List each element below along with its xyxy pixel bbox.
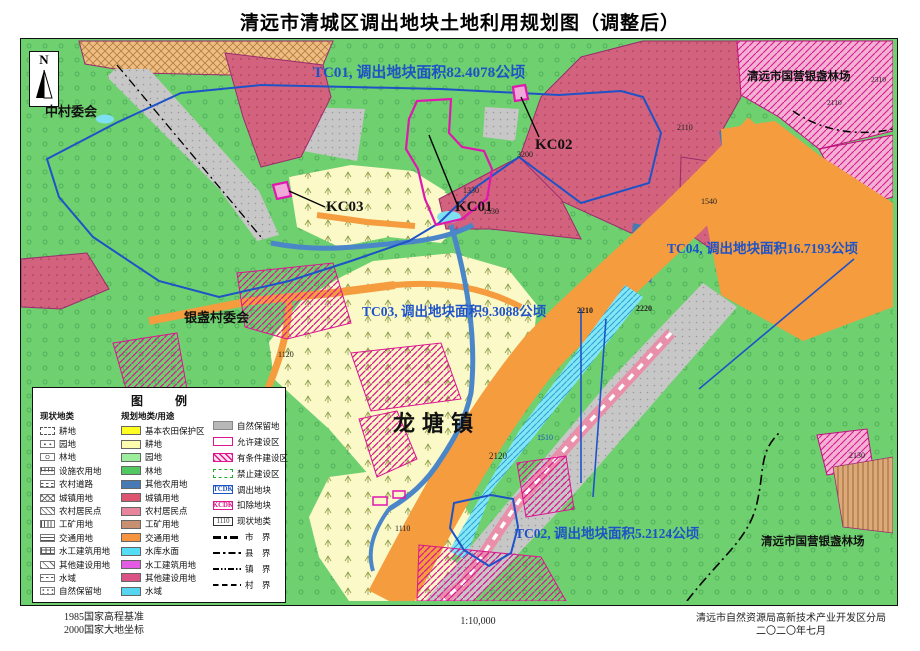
legend-item-label: 农村居民点 [145,505,188,517]
label-kc03: KC03 [326,200,364,215]
legend-item-label: 扣除地块 [237,499,271,511]
agency-name: 清远市自然资源局高新技术产业开发区分局 [696,612,886,625]
label-kc02: KC02 [535,138,573,153]
map-scale: 1:10,000 [408,616,548,627]
tcdk-swatch: TCDK [213,485,233,494]
legend-item: 村 界 [213,577,283,593]
legend-item-label: 市 界 [245,531,271,543]
legend-current-column: 现状地类 耕地园地林地设施农用地农村道路城镇用地农村居民点工矿用地交通用地水工建… [40,410,120,598]
legend-item: 林地 [40,451,120,464]
code-1540: 1540 [701,198,717,206]
legend-item-label: 交通用地 [59,532,93,544]
code-2110-b: 2110 [677,124,693,132]
code-2110-a: 2110 [827,99,842,107]
place-zhongcun: 中村委会 [45,105,97,118]
jiaotong-pattern-swatch [40,534,55,542]
agency-note: 清远市自然资源局高新技术产业开发区分局 二〇二〇年七月 [696,612,886,638]
legend-item-label: 耕地 [145,438,162,450]
legend-item: 市 界 [213,529,283,545]
place-linchang-top: 清远市国营银盏林场 [747,72,851,84]
legend-item-label: 水库水面 [145,545,179,557]
color-swatch [121,493,141,502]
legend-item: 耕地 [121,437,216,450]
map-footer: 1985国家高程基准 2000国家大地坐标 1:10,000 清远市自然资源局高… [20,610,896,648]
code-3200: 3200 [517,151,533,159]
color-swatch [121,547,141,556]
code-2120: 2120 [489,452,507,461]
chengzhen-pattern-swatch [40,494,55,502]
legend-col1-header: 现状地类 [40,410,120,422]
legend-item: 工矿用地 [40,518,120,531]
legend-title: 图 例 [33,392,285,409]
gengdi-pattern-swatch [40,427,55,435]
forbid-swatch [213,469,233,478]
legend-item-label: 交通用地 [145,532,179,544]
page-title: 清远市清城区调出地块土地利用规划图（调整后） [0,8,920,35]
legend-item: 允许建设区 [213,434,283,450]
legend-item: 有条件建设区 [213,450,283,466]
shuiyu-pattern-swatch [40,574,55,582]
color-swatch [121,466,141,475]
legend-zone-column: 自然保留地允许建设区有条件建设区禁止建设区TCDK调出地块KCDK扣除地块111… [213,418,283,593]
legend-item-label: 农村道路 [59,478,93,490]
legend-item: 其他建设用地 [121,571,216,584]
map-frame: N 中村委会 清远市国营银盏林场 银盏村委会 龙塘镇 清远市国营银盏林场 TC0… [20,38,898,606]
legend-item: 农村居民点 [121,504,216,517]
legend-item: 水工建筑用地 [40,545,120,558]
legend-item-label: 园地 [59,438,76,450]
legend-item: 交通用地 [40,531,120,544]
legend-item: 城镇用地 [121,491,216,504]
legend-item: 禁止建设区 [213,466,283,482]
legend-item-label: 林地 [59,451,76,463]
color-swatch [121,520,141,529]
cond-swatch [213,453,233,462]
sheshi-pattern-swatch [40,467,55,475]
legend-item: 耕地 [40,424,120,437]
legend-item: 园地 [40,437,120,450]
legend-item-label: 自然保留地 [59,585,102,597]
legend-item: 农村道路 [40,478,120,491]
allow-swatch [213,437,233,446]
legend-item-label: 城镇用地 [145,492,179,504]
lindi-pattern-swatch [40,453,55,461]
north-compass: N [29,51,59,107]
legend-item-label: 城镇用地 [59,492,93,504]
datum-line1: 1985国家高程基准 [64,612,144,625]
legend-item-label: 基本农田保护区 [145,425,205,437]
legend-item-label: 允许建设区 [237,436,280,448]
color-swatch [121,507,141,516]
legend-item-label: 工矿用地 [145,518,179,530]
annotation-tc04: TC04, 调出地块面积16.7193公顷 [667,242,858,256]
code-swatch: 1110 [213,517,233,526]
line-xian-swatch [213,552,241,554]
color-swatch [121,573,141,582]
code-2130: 2130 [849,452,865,460]
legend-item-label: 县 界 [245,547,271,559]
legend-item: KCDK扣除地块 [213,497,283,513]
code-2210: 2210 [577,307,593,315]
legend-item-label: 镇 界 [245,563,271,575]
legend-item: 工矿用地 [121,518,216,531]
code-2220: 2220 [636,305,652,313]
legend-item-label: 自然保留地 [237,420,280,432]
jumindian-pattern-swatch [40,507,55,515]
legend: 图 例 现状地类 耕地园地林地设施农用地农村道路城镇用地农村居民点工矿用地交通用… [32,387,286,603]
legend-item-label: 园地 [145,451,162,463]
region-mining-vlines [833,457,893,533]
place-longtang: 龙塘镇 [393,413,480,435]
legend-item: 基本农田保护区 [121,424,216,437]
code-2310: 2310 [871,76,886,84]
legend-item-label: 村 界 [245,579,271,591]
line-zhen-swatch [213,568,241,570]
code-1120: 1120 [278,351,294,359]
legend-item-label: 水域 [59,572,76,584]
legend-item: 水域 [40,571,120,584]
legend-item: 其他建设用地 [40,558,120,571]
legend-item: 林地 [121,464,216,477]
legend-item: 交通用地 [121,531,216,544]
legend-item: 镇 界 [213,561,283,577]
legend-item: TCDK调出地块 [213,482,283,498]
datum-line2: 2000国家大地坐标 [64,625,144,638]
shuigong-pattern-swatch [40,547,55,555]
gray-swatch [213,421,233,430]
legend-item-label: 其他建设用地 [59,559,110,571]
color-swatch [121,426,141,435]
code-1530: 1530 [483,208,499,216]
legend-item: 其他农用地 [121,478,216,491]
place-linchang-bottom: 清远市国营银盏林场 [761,537,865,549]
legend-item-label: 设施农用地 [59,465,102,477]
legend-item-label: 其他建设用地 [145,572,196,584]
legend-col1-list: 耕地园地林地设施农用地农村道路城镇用地农村居民点工矿用地交通用地水工建筑用地其他… [40,424,120,598]
gongkuang-pattern-swatch [40,520,55,528]
legend-planned-column: 规划地类/用途 基本农田保护区耕地园地林地其他农用地城镇用地农村居民点工矿用地交… [121,410,216,598]
legend-item: 设施农用地 [40,464,120,477]
legend-item-label: 现状地类 [237,515,271,527]
north-arrow-icon [32,68,56,102]
datum-note: 1985国家高程基准 2000国家大地坐标 [64,612,144,637]
legend-item: 县 界 [213,545,283,561]
legend-item-label: 有条件建设区 [237,452,288,464]
legend-col3-list: 自然保留地允许建设区有条件建设区禁止建设区TCDK调出地块KCDK扣除地块111… [213,418,283,593]
legend-col2-header: 规划地类/用途 [121,410,216,422]
legend-item-label: 调出地块 [237,484,271,496]
yuandi-pattern-swatch [40,440,55,448]
qitajianshe-pattern-swatch [40,561,55,569]
map-date: 二〇二〇年七月 [696,625,886,638]
kcdk-swatch: KCDK [213,501,233,510]
page: 清远市清城区调出地块土地利用规划图（调整后） [0,0,920,651]
legend-item: 自然保留地 [40,585,120,598]
annotation-tc01: TC01, 调出地块面积82.4078公顷 [313,66,525,81]
legend-item-label: 工矿用地 [59,518,93,530]
legend-item: 园地 [121,451,216,464]
legend-item-label: 水域 [145,585,162,597]
annotation-tc03: TC03, 调出地块面积9.3088公顷 [362,305,546,319]
annotation-tc02: TC02, 调出地块面积5.2124公顷 [515,527,699,541]
color-swatch [121,453,141,462]
color-swatch [121,560,141,569]
color-swatch [121,533,141,542]
north-label: N [30,52,58,68]
line-shi-swatch [213,536,241,539]
code-1330: 1330 [463,187,479,195]
legend-item-label: 林地 [145,465,162,477]
legend-item: 1110现状地类 [213,513,283,529]
color-swatch [121,480,141,489]
place-yinzhan: 银盏村委会 [184,311,249,324]
legend-item-label: 耕地 [59,425,76,437]
legend-item-label: 禁止建设区 [237,468,280,480]
legend-item: 水库水面 [121,545,216,558]
code-1510: 1510 [537,434,553,442]
color-swatch [121,440,141,449]
legend-col2-list: 基本农田保护区耕地园地林地其他农用地城镇用地农村居民点工矿用地交通用地水库水面水… [121,424,216,598]
legend-item: 农村居民点 [40,504,120,517]
legend-item: 自然保留地 [213,418,283,434]
legend-item: 水域 [121,585,216,598]
legend-item: 水工建筑用地 [121,558,216,571]
code-1110: 1110 [395,525,410,533]
legend-item: 城镇用地 [40,491,120,504]
ziranbaoliu-pattern-swatch [40,587,55,595]
legend-item-label: 其他农用地 [145,478,188,490]
color-swatch [121,587,141,596]
legend-item-label: 水工建筑用地 [145,559,196,571]
daolu-pattern-swatch [40,480,55,488]
legend-item-label: 水工建筑用地 [59,545,110,557]
legend-item-label: 农村居民点 [59,505,102,517]
line-cun-swatch [213,584,241,586]
